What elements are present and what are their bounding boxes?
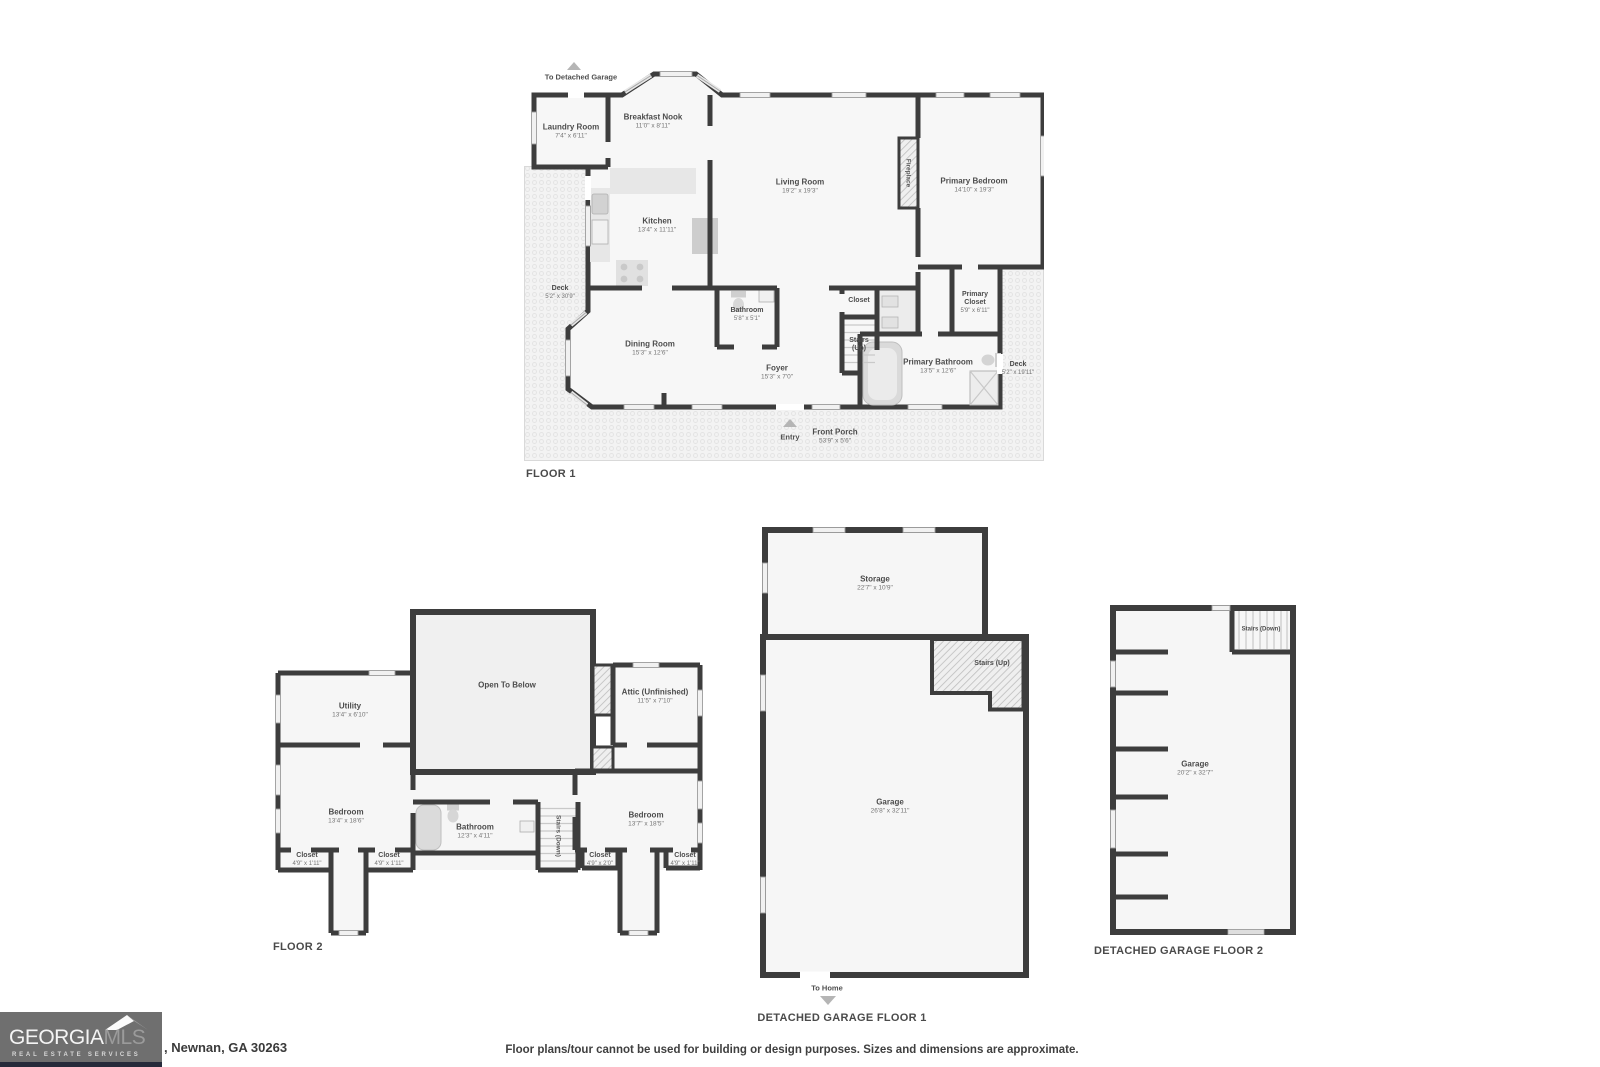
room-label-garage2: Garage 20'2" x 32'7": [1177, 759, 1213, 776]
fireplace-annotation: Fireplace: [905, 159, 912, 188]
room-label-laundry: Laundry Room 7'4" x 6'11": [543, 122, 599, 139]
to-garage-arrow-up-icon: [567, 62, 581, 70]
floor1-drawing: [524, 60, 1044, 485]
to-home-arrow-down-icon: [820, 996, 836, 1005]
room-label-deck-right: Deck 5'2" x 19'11": [1002, 361, 1034, 377]
floor2-plan: Utility 13'4" x 6'10" Open To Below Atti…: [265, 595, 705, 960]
garage2-door-marking: [1228, 930, 1264, 935]
disclaimer-text: Floor plans/tour cannot be used for buil…: [392, 1044, 1192, 1056]
detached-garage-floor1-plan: Storage 22'7" x 10'9" Stairs (Up) Garage…: [755, 525, 1045, 1030]
room-label-utility: Utility 13'4" x 6'10": [332, 701, 368, 718]
floor1-hall-cabinets: [880, 291, 917, 334]
room-label-closet-left-1: Closet 4'9" x 1'11": [292, 852, 321, 868]
room-label-breakfast-nook: Breakfast Nook 11'0" x 8'11": [624, 112, 683, 129]
room-label-bathroom: Bathroom 5'8" x 5'1": [730, 307, 763, 323]
logo-strip: [0, 1062, 162, 1067]
floorplan-page: { "page": { "disclaimer": "Floor plans/t…: [0, 0, 1600, 1067]
open-to-below-box: [413, 612, 593, 772]
garage2-drawing: [1090, 595, 1320, 963]
room-label-attic: Attic (Unfinished) 11'5" x 7'10": [622, 687, 689, 704]
room-label-bedroom-right: Bedroom 13'7" x 18'5": [628, 810, 664, 827]
room-label-kitchen: Kitchen 13'4" x 11'11": [638, 216, 676, 233]
room-label-stairs-up: Stairs (Up): [849, 337, 868, 353]
georgia-mls-logo: GEORGIAMLS REAL ESTATE SERVICES: [0, 1012, 162, 1067]
room-label-dining-room: Dining Room 15'3" x 12'6": [625, 339, 675, 356]
floor2-drawing: [265, 595, 705, 960]
property-address: , Newnan, GA 30263: [164, 1040, 287, 1055]
entry-annotation: Entry: [780, 433, 799, 442]
room-label-primary-bathroom: Primary Bathroom 13'5" x 12'6": [903, 357, 973, 374]
to-garage-annotation: To Detached Garage: [545, 73, 617, 82]
room-label-bathroom-floor2: Bathroom 12'3" x 4'11": [456, 822, 494, 839]
room-label-closet-left-2: Closet 4'9" x 1'11": [374, 852, 403, 868]
room-label-open-to-below: Open To Below: [478, 680, 536, 689]
room-label-primary-bedroom: Primary Bedroom 14'10" x 19'3": [940, 176, 1007, 193]
garage1-title: DETACHED GARAGE FLOOR 1: [757, 1012, 926, 1024]
room-label-closet: Closet: [848, 297, 869, 305]
garage2-title: DETACHED GARAGE FLOOR 2: [1094, 945, 1263, 957]
logo-brand: GEORGIAMLS: [9, 1027, 145, 1048]
floor2-title: FLOOR 2: [273, 941, 323, 953]
garage1-drawing: [755, 525, 1045, 1010]
detached-garage-floor2-plan: Stairs (Down) Garage 20'2" x 32'7" DETAC…: [1090, 595, 1320, 963]
room-label-stairs-down-floor2: Stairs (Down): [555, 815, 562, 857]
room-label-foyer: Foyer 15'3" x 7'0": [761, 363, 793, 380]
room-label-bedroom-left: Bedroom 13'4" x 18'6": [328, 807, 364, 824]
room-label-deck-left: Deck 5'2" x 30'9": [545, 285, 575, 301]
room-label-primary-closet: Primary Closet 5'9" x 6'11": [952, 291, 998, 315]
room-label-closet-right-2: Closet 4'9" x 1'11": [670, 852, 699, 868]
room-label-garage1: Garage 26'8" x 32'11": [871, 797, 910, 814]
to-home-annotation: To Home: [811, 984, 843, 993]
room-label-garage2-stairs: Stairs (Down): [1242, 627, 1281, 634]
room-label-closet-right-1: Closet 4'9" x 2'0": [587, 852, 613, 868]
logo-tagline: REAL ESTATE SERVICES: [12, 1052, 141, 1058]
room-label-garage1-stairs: Stairs (Up): [974, 660, 1009, 668]
room-label-living-room: Living Room 19'2" x 19'3": [776, 177, 824, 194]
garage1-door-opening: [800, 972, 830, 979]
room-label-storage: Storage 22'7" x 10'9": [857, 574, 893, 591]
floor1-plan: To Detached Garage Laundry Room 7'4" x 6…: [524, 60, 1044, 485]
room-label-front-porch: Front Porch 53'9" x 5'6": [812, 427, 857, 444]
floor1-title: FLOOR 1: [526, 468, 576, 480]
